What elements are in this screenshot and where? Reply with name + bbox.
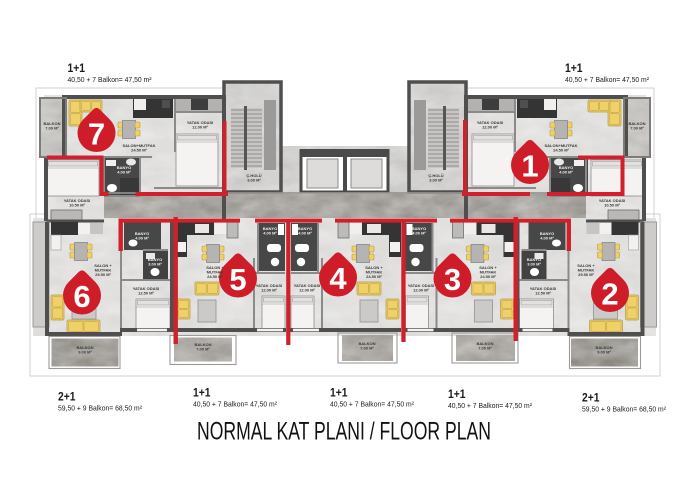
svg-text:24.50 M²: 24.50 M² xyxy=(207,274,223,279)
svg-text:3.00 M²: 3.00 M² xyxy=(527,262,541,267)
svg-text:5: 5 xyxy=(229,262,246,297)
svg-text:12.00 M²: 12.00 M² xyxy=(299,288,315,293)
svg-text:40,50 + 7 Balkon= 47,50 m²: 40,50 + 7 Balkon= 47,50 m² xyxy=(565,75,649,84)
svg-text:7.00 M²: 7.00 M² xyxy=(360,346,374,351)
svg-text:4.00 M²: 4.00 M² xyxy=(117,170,131,175)
svg-text:NORMAL KAT PLANI / FLOOR PLAN: NORMAL KAT PLANI / FLOOR PLAN xyxy=(197,418,491,446)
svg-text:3: 3 xyxy=(444,262,461,297)
svg-text:59,50 + 9 Balkon= 68,50 m²: 59,50 + 9 Balkon= 68,50 m² xyxy=(58,403,142,412)
svg-text:1+1: 1+1 xyxy=(448,387,466,401)
svg-text:12.50 M²: 12.50 M² xyxy=(535,291,551,296)
svg-text:1: 1 xyxy=(521,148,538,183)
svg-text:40,50 + 7 Balkon= 47,50 m²: 40,50 + 7 Balkon= 47,50 m² xyxy=(448,401,532,410)
svg-text:12.00 M²: 12.00 M² xyxy=(192,125,208,130)
svg-text:7.00 M²: 7.00 M² xyxy=(45,126,59,131)
svg-text:1+1: 1+1 xyxy=(565,61,583,75)
svg-text:12.50 M²: 12.50 M² xyxy=(138,291,154,296)
svg-text:24.50 M²: 24.50 M² xyxy=(366,274,382,279)
svg-text:3.00 M²: 3.00 M² xyxy=(429,178,443,183)
svg-text:9.00 M²: 9.00 M² xyxy=(597,350,611,355)
svg-text:4.00 M²: 4.00 M² xyxy=(135,236,149,241)
svg-text:4.00 M²: 4.00 M² xyxy=(263,231,277,236)
svg-text:4.00 M²: 4.00 M² xyxy=(412,231,426,236)
svg-text:24.50 M²: 24.50 M² xyxy=(131,148,147,153)
svg-text:3.00 M²: 3.00 M² xyxy=(148,262,162,267)
svg-text:7.00 M²: 7.00 M² xyxy=(196,347,210,352)
svg-text:12.00 M²: 12.00 M² xyxy=(482,125,498,130)
svg-text:6: 6 xyxy=(73,279,90,314)
svg-text:12.00 M²: 12.00 M² xyxy=(261,288,277,293)
svg-text:40,50 + 7 Balkon= 47,50 m²: 40,50 + 7 Balkon= 47,50 m² xyxy=(330,399,414,408)
svg-text:29.50 M²: 29.50 M² xyxy=(95,272,111,277)
svg-text:10.50 M²: 10.50 M² xyxy=(604,203,620,208)
svg-text:24.50 M²: 24.50 M² xyxy=(553,148,569,153)
svg-text:12.00 M²: 12.00 M² xyxy=(413,288,429,293)
svg-text:2+1: 2+1 xyxy=(58,390,76,404)
svg-text:2+1: 2+1 xyxy=(582,391,600,405)
svg-text:1+1: 1+1 xyxy=(68,61,86,75)
svg-text:1+1: 1+1 xyxy=(330,386,348,400)
svg-text:7.00 M²: 7.00 M² xyxy=(478,346,492,351)
svg-text:4.00 M²: 4.00 M² xyxy=(540,236,554,241)
svg-text:2: 2 xyxy=(601,276,618,311)
svg-text:9.00 M²: 9.00 M² xyxy=(78,350,92,355)
svg-text:40,50 + 7 Balkon= 47,50 m²: 40,50 + 7 Balkon= 47,50 m² xyxy=(193,399,277,408)
svg-text:7.00 M²: 7.00 M² xyxy=(630,126,644,131)
svg-text:40,50 + 7 Balkon= 47,50 m²: 40,50 + 7 Balkon= 47,50 m² xyxy=(68,75,152,84)
svg-text:3.00 M²: 3.00 M² xyxy=(247,178,261,183)
svg-text:59,50 + 9 Balkon= 68,50 m²: 59,50 + 9 Balkon= 68,50 m² xyxy=(582,404,666,413)
svg-text:4: 4 xyxy=(329,261,347,296)
svg-text:10.50 M²: 10.50 M² xyxy=(69,203,85,208)
svg-text:4.00 M²: 4.00 M² xyxy=(298,231,312,236)
svg-text:7: 7 xyxy=(88,116,105,151)
svg-text:1+1: 1+1 xyxy=(193,386,211,400)
svg-text:4.00 M²: 4.00 M² xyxy=(559,170,573,175)
svg-text:24.50 M²: 24.50 M² xyxy=(480,274,496,279)
svg-text:29.50 M²: 29.50 M² xyxy=(578,272,594,277)
